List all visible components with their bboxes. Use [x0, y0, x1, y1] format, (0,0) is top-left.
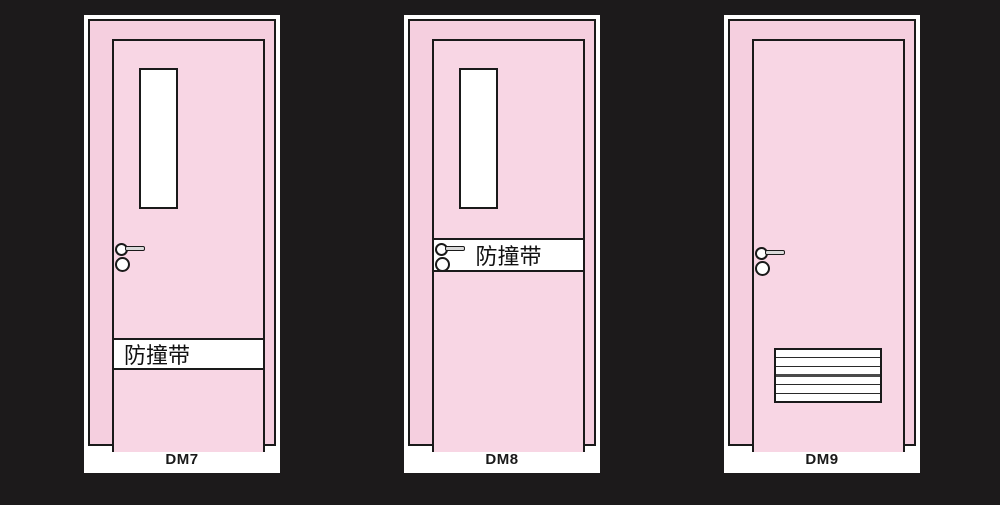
door-label: DM8 [404, 446, 600, 473]
handle-lever-bar-icon [765, 250, 785, 255]
door-window [139, 68, 178, 209]
door-leaf: 防撞带 [432, 39, 585, 452]
bump-strip: 防撞带 [114, 338, 263, 370]
vent-slat [776, 358, 880, 366]
vent-slat [776, 394, 880, 401]
door-leaf: 防撞带 [112, 39, 265, 452]
door-frame [728, 19, 916, 446]
vent-slat [776, 367, 880, 377]
handle-lever-bar-icon [125, 246, 145, 251]
bump-strip-label: 防撞带 [475, 239, 541, 271]
door-leaf [752, 39, 905, 452]
door-card-dm7: 防撞带 DM7 [84, 15, 280, 473]
door-card-dm8: 防撞带 DM8 [404, 15, 600, 473]
door-label: DM9 [724, 446, 920, 473]
door-card-dm9: DM9 [724, 15, 920, 473]
handle-knob-icon [115, 257, 130, 272]
door-catalog-canvas: 防撞带 DM7 防撞带 [0, 0, 1000, 505]
handle-lever-bar-icon [445, 246, 465, 251]
vent-slat [776, 377, 880, 385]
bump-strip: 防撞带 [434, 238, 583, 272]
vent-grille [774, 348, 882, 403]
bump-strip-label: 防撞带 [114, 338, 190, 370]
door-frame: 防撞带 [408, 19, 596, 446]
door-window [459, 68, 498, 209]
handle-knob-icon [435, 257, 450, 272]
vent-slat [776, 385, 880, 393]
vent-slat [776, 350, 880, 358]
door-label: DM7 [84, 446, 280, 473]
door-frame: 防撞带 [88, 19, 276, 446]
handle-knob-icon [755, 261, 770, 276]
